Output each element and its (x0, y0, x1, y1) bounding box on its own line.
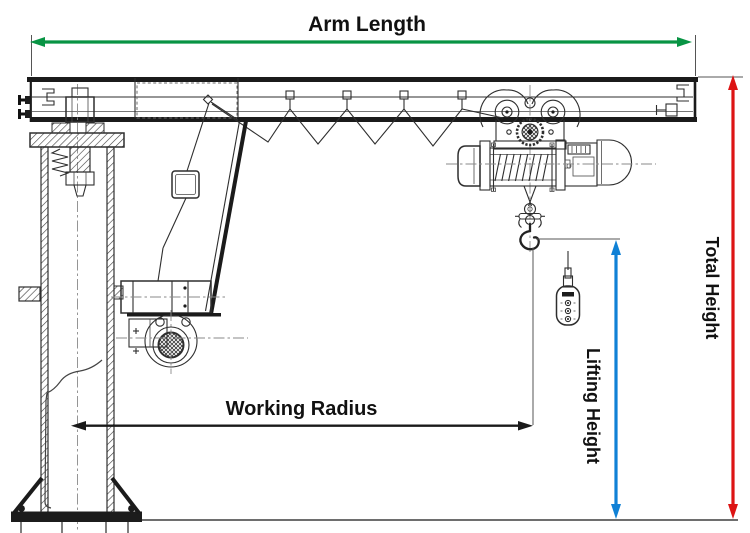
power-cable (45, 360, 102, 508)
arm-length-dimension (30, 35, 696, 76)
arm-right-end-stop (677, 85, 689, 101)
festoon-wire (212, 104, 503, 146)
hoist-rope-drum (490, 143, 556, 192)
hoist-left-end-cap (458, 146, 480, 186)
crane-line-drawing (0, 0, 750, 533)
slewing-drive (111, 121, 248, 374)
pendant-control (557, 251, 580, 325)
lifting-height-label: Lifting Height (581, 336, 603, 476)
arm-end-stop-bolt (656, 104, 677, 116)
slewing-flange (30, 133, 124, 147)
hoist-motor-end-dome (597, 140, 632, 185)
arm-root-dashed-outline (137, 83, 237, 118)
column-side-bracket (19, 287, 40, 301)
lifting-height-dimension (533, 239, 621, 519)
pendant-buttons (561, 300, 576, 321)
base-plate (11, 512, 142, 523)
support-diagonal (211, 121, 246, 314)
total-height-label: Total Height (700, 213, 722, 363)
column-left-wall (41, 147, 48, 513)
working-radius-dimension (71, 421, 533, 431)
slewing-motor (116, 310, 248, 374)
base (11, 478, 738, 533)
gusset-right (112, 478, 139, 513)
cable-hanger (286, 91, 466, 109)
arm-length-label: Arm Length (257, 13, 477, 37)
working-radius-label: Working Radius (194, 398, 409, 421)
column-right-wall (107, 147, 114, 513)
jib-arm (19, 77, 698, 122)
anchor-bolts (21, 522, 128, 533)
jib-crane-diagram: Arm Length Total Height Lifting Height W… (0, 0, 750, 533)
arm-left-bolts (19, 95, 31, 119)
electric-hoist (446, 140, 656, 206)
column (19, 84, 124, 530)
crane-hook (520, 224, 538, 249)
junction-box (172, 171, 199, 198)
hoist-motor-housing (565, 143, 597, 186)
